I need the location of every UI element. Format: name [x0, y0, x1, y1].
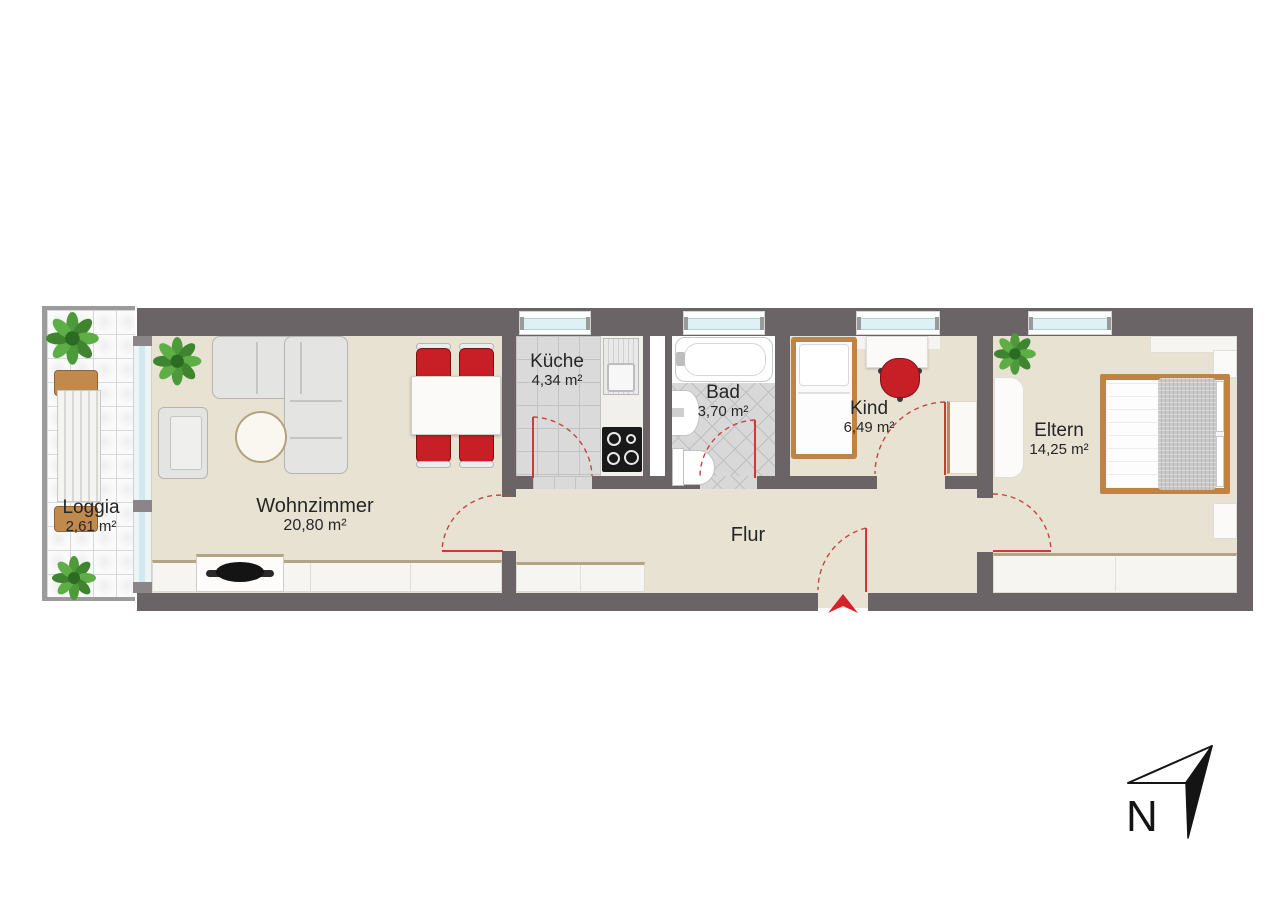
double-bed-pillow [1216, 381, 1224, 432]
balcony-door-glass [139, 340, 145, 589]
corner-sofa-vertical [284, 336, 348, 474]
window-glass [522, 318, 588, 330]
bathtub-faucet [676, 352, 685, 366]
wall-kueche-bottom-right [592, 476, 650, 489]
room-name: Kind [844, 399, 895, 420]
label-eltern: Eltern 14,25 m² [1029, 421, 1088, 458]
wall-bottom-left [137, 593, 818, 611]
north-arrow-icon-fill [1186, 746, 1212, 838]
dining-chair-back [459, 461, 494, 468]
floorplan-page: Loggia 2,61 m² Wohnzimmer 20,80 m² Küche… [0, 0, 1280, 905]
stove-burner [607, 452, 620, 465]
window-cap [857, 317, 861, 330]
room-name: Flur [731, 524, 765, 546]
wohnzimmer-door-threshold [502, 497, 516, 551]
kitchen-sink-basin [607, 363, 635, 392]
label-loggia: Loggia 2,61 m² [62, 498, 119, 535]
window-cap [684, 317, 688, 330]
sideboard-seam [310, 563, 311, 591]
balcony-door-mullion-top [133, 336, 152, 346]
double-bed-sheet [1107, 381, 1162, 487]
room-name: Wohnzimmer [256, 495, 373, 517]
wall-bad-kind [775, 336, 790, 476]
sideboard-seam [580, 565, 581, 591]
wall-kueche-shaft [643, 336, 650, 476]
toilet-bowl [683, 450, 715, 485]
nightstand-bottom [1213, 503, 1237, 539]
room-area: 14,25 m² [1029, 442, 1088, 459]
dining-chair-back [416, 461, 451, 468]
double-bed-blanket [1158, 378, 1216, 490]
window-cap [1107, 317, 1111, 330]
wall-eltern-flur [977, 552, 993, 593]
label-bad: Bad 3,70 m² [698, 383, 749, 420]
armchair-seat [170, 416, 202, 470]
room-area: 20,80 m² [256, 517, 373, 535]
sofa-seam [256, 342, 258, 394]
room-area: 3,70 m² [698, 404, 749, 421]
single-bed-blanket [798, 392, 850, 452]
stove-burner [607, 432, 621, 446]
window-glass [686, 318, 762, 330]
eltern-wardrobe [994, 377, 1024, 478]
bathtub-inner [684, 343, 766, 376]
label-flur: Flur [731, 524, 765, 546]
room-area: 2,61 m² [62, 519, 119, 536]
kind-door-threshold [877, 476, 945, 489]
coffee-table [235, 411, 287, 463]
window-cap [1029, 317, 1033, 330]
wall-right [1237, 308, 1253, 611]
room-name: Eltern [1029, 421, 1088, 442]
kind-wardrobe [947, 401, 977, 474]
sideboard-seam [410, 563, 411, 591]
sofa-seam [290, 437, 342, 439]
tv-screen [216, 562, 264, 582]
label-kueche: Küche 4,34 m² [530, 352, 584, 389]
balcony-door-handle [133, 500, 152, 512]
stove-burner [624, 450, 639, 465]
kueche-door-threshold [533, 476, 592, 489]
window-eltern [1028, 311, 1112, 335]
stove-burner [626, 434, 636, 444]
sofa-seam [300, 342, 302, 394]
wall-kueche-bottom-left [516, 476, 533, 489]
dining-table [411, 376, 501, 435]
washbasin-tap [672, 408, 684, 417]
wall-kind-eltern [977, 336, 993, 498]
window-kind [856, 311, 940, 335]
north-arrow-icon [1128, 746, 1212, 783]
wall-bad-bottom-right [757, 476, 790, 489]
wall-wohnzimmer-kueche [502, 336, 516, 497]
sofa-seam [290, 400, 342, 402]
label-wohnzimmer: Wohnzimmer 20,80 m² [256, 495, 373, 535]
sideboard-seam [1115, 557, 1116, 591]
room-name: Loggia [62, 498, 119, 519]
room-area: 6,49 m² [844, 420, 895, 437]
window-cap [935, 317, 939, 330]
wall-kind-bottom-right [945, 476, 977, 489]
window-kueche [519, 311, 591, 335]
shaft [650, 336, 665, 476]
room-name: Bad [698, 383, 749, 404]
wall-kind-bottom-left [790, 476, 877, 489]
window-cap [520, 317, 524, 330]
desk-chair [880, 358, 920, 398]
window-glass [859, 318, 937, 330]
wall-bottom-right [868, 593, 1253, 611]
room-area: 4,34 m² [530, 373, 584, 390]
window-cap [760, 317, 764, 330]
window-cap [586, 317, 590, 330]
room-name: Küche [530, 352, 584, 373]
label-kind: Kind 6,49 m² [844, 399, 895, 436]
double-bed-pillow [1216, 436, 1224, 487]
loggia-railing-bottom [42, 597, 135, 601]
wall-shaft-bad [665, 336, 672, 476]
window-glass [1031, 318, 1109, 330]
window-bad [683, 311, 765, 335]
eltern-door-threshold [977, 498, 993, 552]
wall-wohnzimmer-flur [502, 551, 516, 593]
wall-shaft-bottom [650, 476, 672, 489]
balcony-door-mullion-bottom [133, 582, 152, 593]
balcony-table [57, 390, 101, 502]
entrance-threshold [818, 593, 868, 608]
compass-label: N [1126, 792, 1158, 842]
single-bed-pillow [799, 344, 849, 386]
